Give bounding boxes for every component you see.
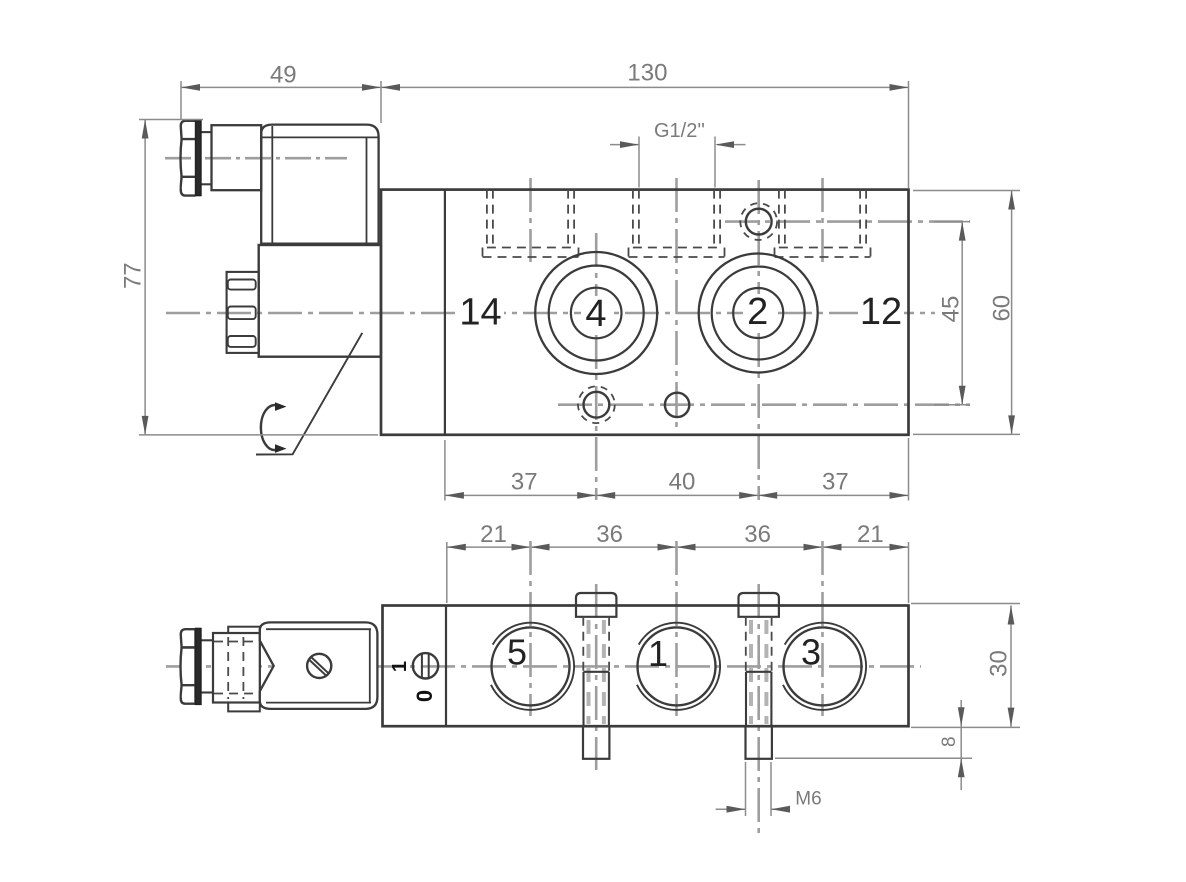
svg-text:37: 37	[822, 469, 849, 496]
svg-text:14: 14	[459, 292, 501, 334]
svg-text:45: 45	[938, 296, 965, 323]
svg-text:36: 36	[596, 521, 623, 548]
svg-text:5: 5	[507, 632, 527, 673]
svg-text:1: 1	[648, 633, 668, 674]
svg-text:49: 49	[270, 62, 297, 89]
svg-text:40: 40	[669, 469, 696, 496]
svg-text:G1/2'': G1/2''	[654, 120, 705, 142]
svg-text:2: 2	[747, 291, 768, 333]
svg-text:4: 4	[585, 293, 606, 335]
svg-text:1: 1	[389, 661, 411, 672]
svg-text:130: 130	[627, 60, 667, 87]
svg-text:12: 12	[860, 291, 902, 333]
svg-text:77: 77	[119, 262, 146, 289]
svg-text:60: 60	[989, 295, 1016, 322]
svg-text:0: 0	[412, 690, 437, 702]
svg-text:21: 21	[857, 521, 884, 548]
svg-text:30: 30	[986, 650, 1013, 677]
svg-text:37: 37	[511, 469, 538, 496]
svg-text:3: 3	[801, 632, 821, 673]
svg-text:21: 21	[480, 521, 507, 548]
svg-text:8: 8	[939, 736, 960, 747]
svg-text:36: 36	[744, 521, 771, 548]
svg-text:M6: M6	[795, 789, 821, 810]
